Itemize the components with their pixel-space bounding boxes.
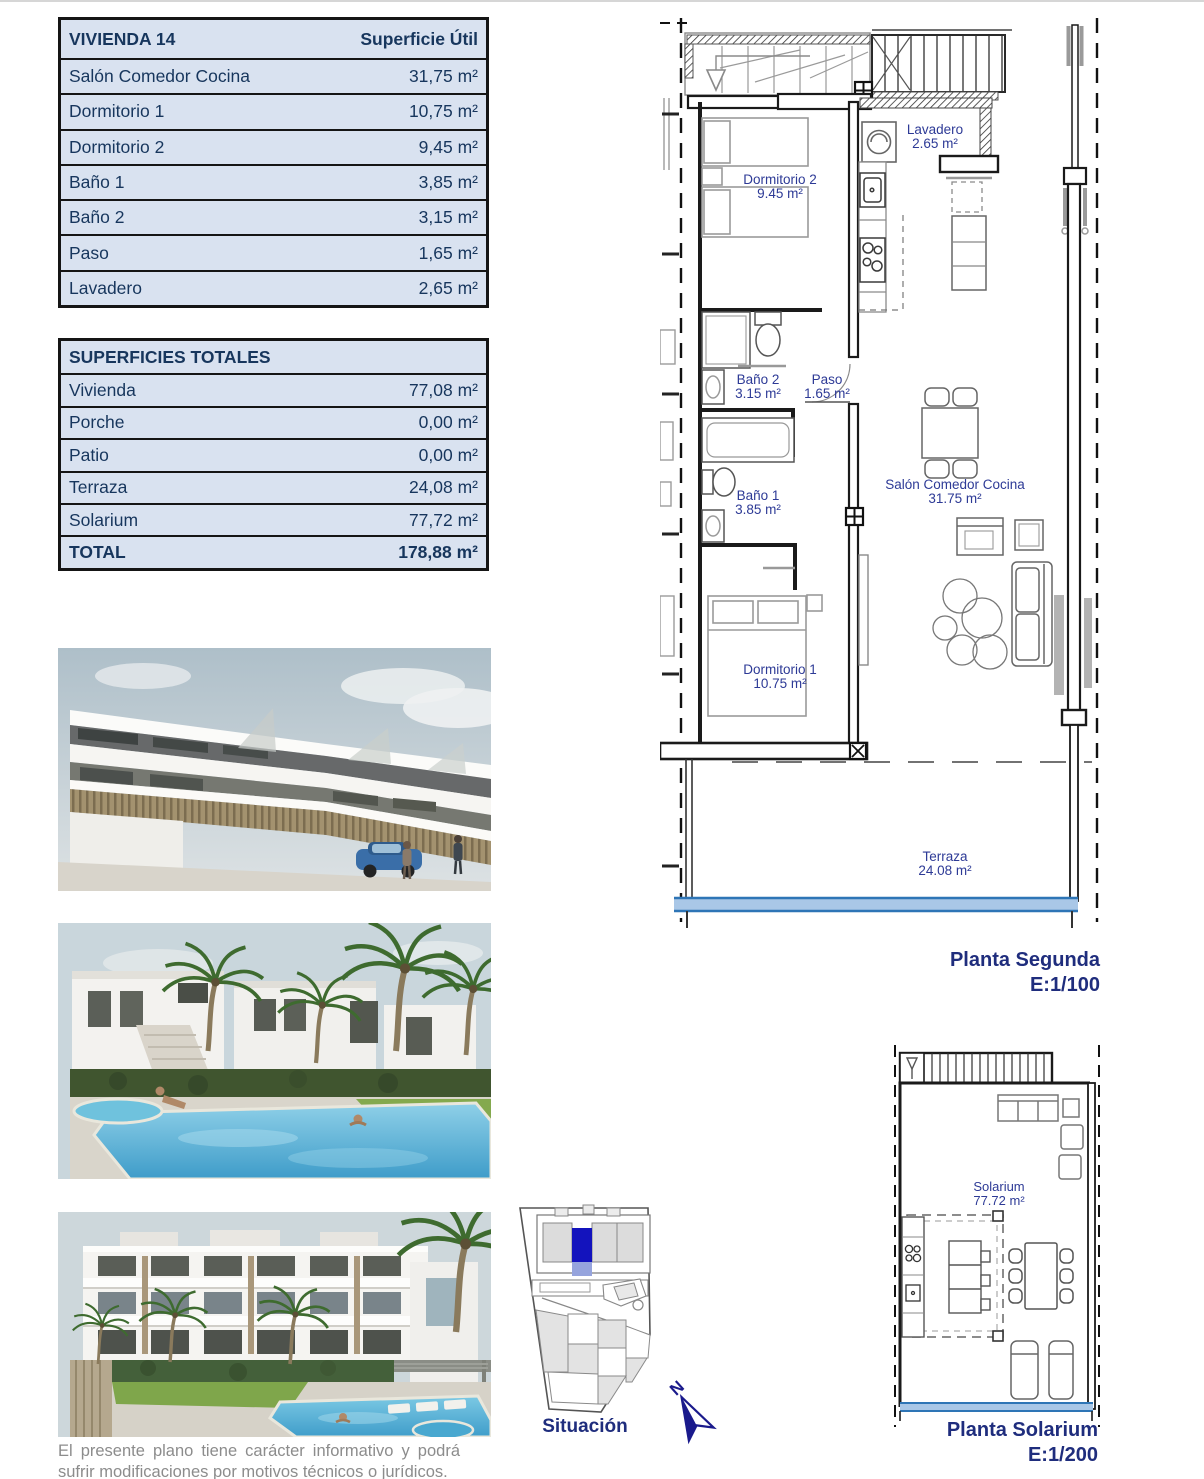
table-row: Terraza 24,08 m² — [61, 471, 486, 503]
table-row: Porche 0,00 m² — [61, 406, 486, 438]
plan-name: Planta Segunda — [840, 948, 1100, 973]
row-value: 1,65 m² — [419, 243, 478, 264]
room-area-terraza: 24.08 m² — [918, 863, 972, 878]
planta-solarium-drawing: Solarium 77.72 m² — [885, 1045, 1104, 1430]
page-top-divider — [0, 0, 1204, 2]
floor-plan-planta-solarium: Solarium 77.72 m² — [885, 1045, 1104, 1430]
party-wall — [1054, 25, 1092, 901]
lavadero-counter — [940, 156, 998, 290]
outdoor-kitchen — [902, 1217, 924, 1337]
table-row: Dormitorio 1 10,75 m² — [61, 93, 486, 128]
dining-table-icon — [1009, 1243, 1073, 1309]
room-label-dormitorio2: Dormitorio 2 — [743, 172, 817, 187]
row-label: Solarium — [69, 510, 138, 531]
tv-unit — [957, 518, 1003, 555]
table-header-row: VIVIENDA 14 Superficie Útil — [61, 20, 486, 58]
lavadero-wall-hatch — [860, 98, 992, 108]
table-row: Salón Comedor Cocina 31,75 m² — [61, 58, 486, 93]
table-row: Baño 2 3,15 m² — [61, 199, 486, 234]
highlighted-unit — [572, 1228, 592, 1262]
room-label-dormitorio1: Dormitorio 1 — [743, 662, 817, 677]
side-table — [1015, 520, 1043, 550]
render-photo-street-view — [58, 648, 491, 891]
room-label-solarium: Solarium — [973, 1179, 1024, 1194]
pool — [74, 1099, 491, 1179]
table-row: Solarium 77,72 m² — [61, 503, 486, 535]
row-value: 77,72 m² — [409, 510, 478, 531]
table-title: VIVIENDA 14 — [69, 29, 175, 50]
building-row — [537, 1205, 650, 1276]
glass-door-leaf — [859, 555, 868, 665]
render-photo-pool-view — [58, 923, 491, 1179]
dining-table-icon — [922, 388, 978, 478]
plan-sheet: VIVIENDA 14 Superficie Útil Salón Comedo… — [0, 0, 1204, 1479]
room-area-solarium: 77.72 m² — [973, 1193, 1025, 1208]
washbasin-icon — [702, 510, 724, 542]
row-label: Lavadero — [69, 278, 142, 299]
row-value: 0,00 m² — [419, 445, 478, 466]
island-counter — [949, 1241, 990, 1313]
total-value: 178,88 m² — [398, 542, 478, 563]
stove-icon — [860, 238, 885, 282]
row-label: Paso — [69, 243, 109, 264]
render-photo-apartments-view — [58, 1212, 491, 1437]
table-header-row: SUPERFICIES TOTALES — [61, 341, 486, 373]
room-area-bano2: 3.15 m² — [735, 386, 781, 401]
row-value: 2,65 m² — [419, 278, 478, 299]
planta-segunda-drawing: Lavadero 2.65 m² Dormitorio 2 9.45 m² Ba… — [660, 10, 1204, 930]
table-row: Dormitorio 2 9,45 m² — [61, 129, 486, 164]
totals-surface-table: SUPERFICIES TOTALES Vivienda 77,08 m² Po… — [58, 338, 489, 571]
plan-name: Planta Solarium — [840, 1418, 1098, 1443]
table-header-value: Superficie Útil — [360, 29, 478, 50]
row-value: 31,75 m² — [409, 66, 478, 87]
room-label-bano2: Baño 2 — [737, 372, 780, 387]
row-label: Baño 1 — [69, 172, 124, 193]
bathtub-icon — [702, 418, 794, 462]
row-label: Baño 2 — [69, 207, 124, 228]
row-label: Salón Comedor Cocina — [69, 66, 250, 87]
row-label: Dormitorio 2 — [69, 137, 164, 158]
plus-marker — [846, 508, 863, 525]
room-label-lavadero: Lavadero — [907, 122, 963, 137]
room-label-terraza: Terraza — [922, 849, 968, 864]
row-value: 24,08 m² — [409, 477, 478, 498]
stairs-icon — [900, 1053, 1052, 1083]
plan-title-solarium: Planta Solarium E:1/200 — [840, 1418, 1098, 1468]
plan-scale: E:1/200 — [840, 1443, 1098, 1468]
x-marker — [850, 743, 866, 759]
room-area-dormitorio1: 10.75 m² — [753, 676, 807, 691]
table-row: Baño 1 3,85 m² — [61, 164, 486, 199]
total-label: TOTAL — [69, 542, 126, 563]
disclaimer-text: El presente plano tiene carácter informa… — [58, 1441, 460, 1479]
row-label: Terraza — [69, 477, 127, 498]
bed-double-icon — [708, 595, 822, 716]
glass-balustrade — [674, 898, 1078, 911]
rug-poufs — [933, 579, 1007, 669]
street-render-graphic — [58, 648, 491, 891]
row-value: 0,00 m² — [419, 412, 478, 433]
situacion-label: Situación — [510, 1416, 660, 1438]
row-value: 77,08 m² — [409, 380, 478, 401]
row-label: Patio — [69, 445, 109, 466]
row-label: Vivienda — [69, 380, 136, 401]
row-value: 10,75 m² — [409, 101, 478, 122]
room-label-salon: Salón Comedor Cocina — [885, 477, 1025, 492]
lounger-icon — [1011, 1341, 1073, 1399]
sink-icon — [906, 1285, 920, 1301]
table-row: Lavadero 2,65 m² — [61, 270, 486, 305]
room-label-paso: Paso — [812, 372, 843, 387]
sofa-icon — [1012, 562, 1052, 666]
washer-icon — [862, 122, 896, 162]
row-value: 3,15 m² — [419, 207, 478, 228]
table-row: Paso 1,65 m² — [61, 234, 486, 269]
table-row: Patio 0,00 m² — [61, 438, 486, 470]
sink-icon — [860, 173, 885, 207]
terraza-structure — [674, 759, 1092, 928]
north-letter: N — [666, 1377, 688, 1399]
row-label: Porche — [69, 412, 124, 433]
table-row: Vivienda 77,08 m² — [61, 373, 486, 405]
plan-title-segunda: Planta Segunda E:1/100 — [840, 948, 1100, 998]
row-value: 9,45 m² — [419, 137, 478, 158]
washbasin-icon — [702, 370, 724, 404]
apartments-render-graphic — [58, 1212, 491, 1437]
room-area-bano1: 3.85 m² — [735, 502, 781, 517]
plan-scale: E:1/100 — [840, 973, 1100, 998]
north-arrow-drawing: N — [655, 1365, 725, 1450]
pool-render-graphic — [58, 923, 491, 1179]
room-area-paso: 1.65 m² — [804, 386, 850, 401]
row-value: 3,85 m² — [419, 172, 478, 193]
stairs-icon — [685, 30, 1012, 100]
table-title: SUPERFICIES TOTALES — [69, 347, 271, 368]
room-area-salon: 31.75 m² — [928, 491, 982, 506]
floor-plan-planta-segunda: Lavadero 2.65 m² Dormitorio 2 9.45 m² Ba… — [660, 10, 1204, 930]
room-label-bano1: Baño 1 — [737, 488, 780, 503]
highlighted-unit-terrace — [572, 1262, 592, 1276]
toilet-icon — [702, 468, 735, 496]
row-label: Dormitorio 1 — [69, 101, 164, 122]
table-total-row: TOTAL 178,88 m² — [61, 535, 486, 567]
toilet-icon — [755, 312, 781, 356]
north-arrow-icon: N — [655, 1365, 725, 1450]
shower-icon — [702, 312, 750, 368]
vivienda-surface-table: VIVIENDA 14 Superficie Útil Salón Comedo… — [58, 17, 489, 308]
kitchen-counter — [859, 162, 903, 312]
outdoor-sofa-icon — [998, 1095, 1083, 1179]
room-area-dormitorio2: 9.45 m² — [757, 186, 803, 201]
room-area-lavadero: 2.65 m² — [912, 136, 958, 151]
neighbour-unit-fragments — [660, 98, 675, 656]
